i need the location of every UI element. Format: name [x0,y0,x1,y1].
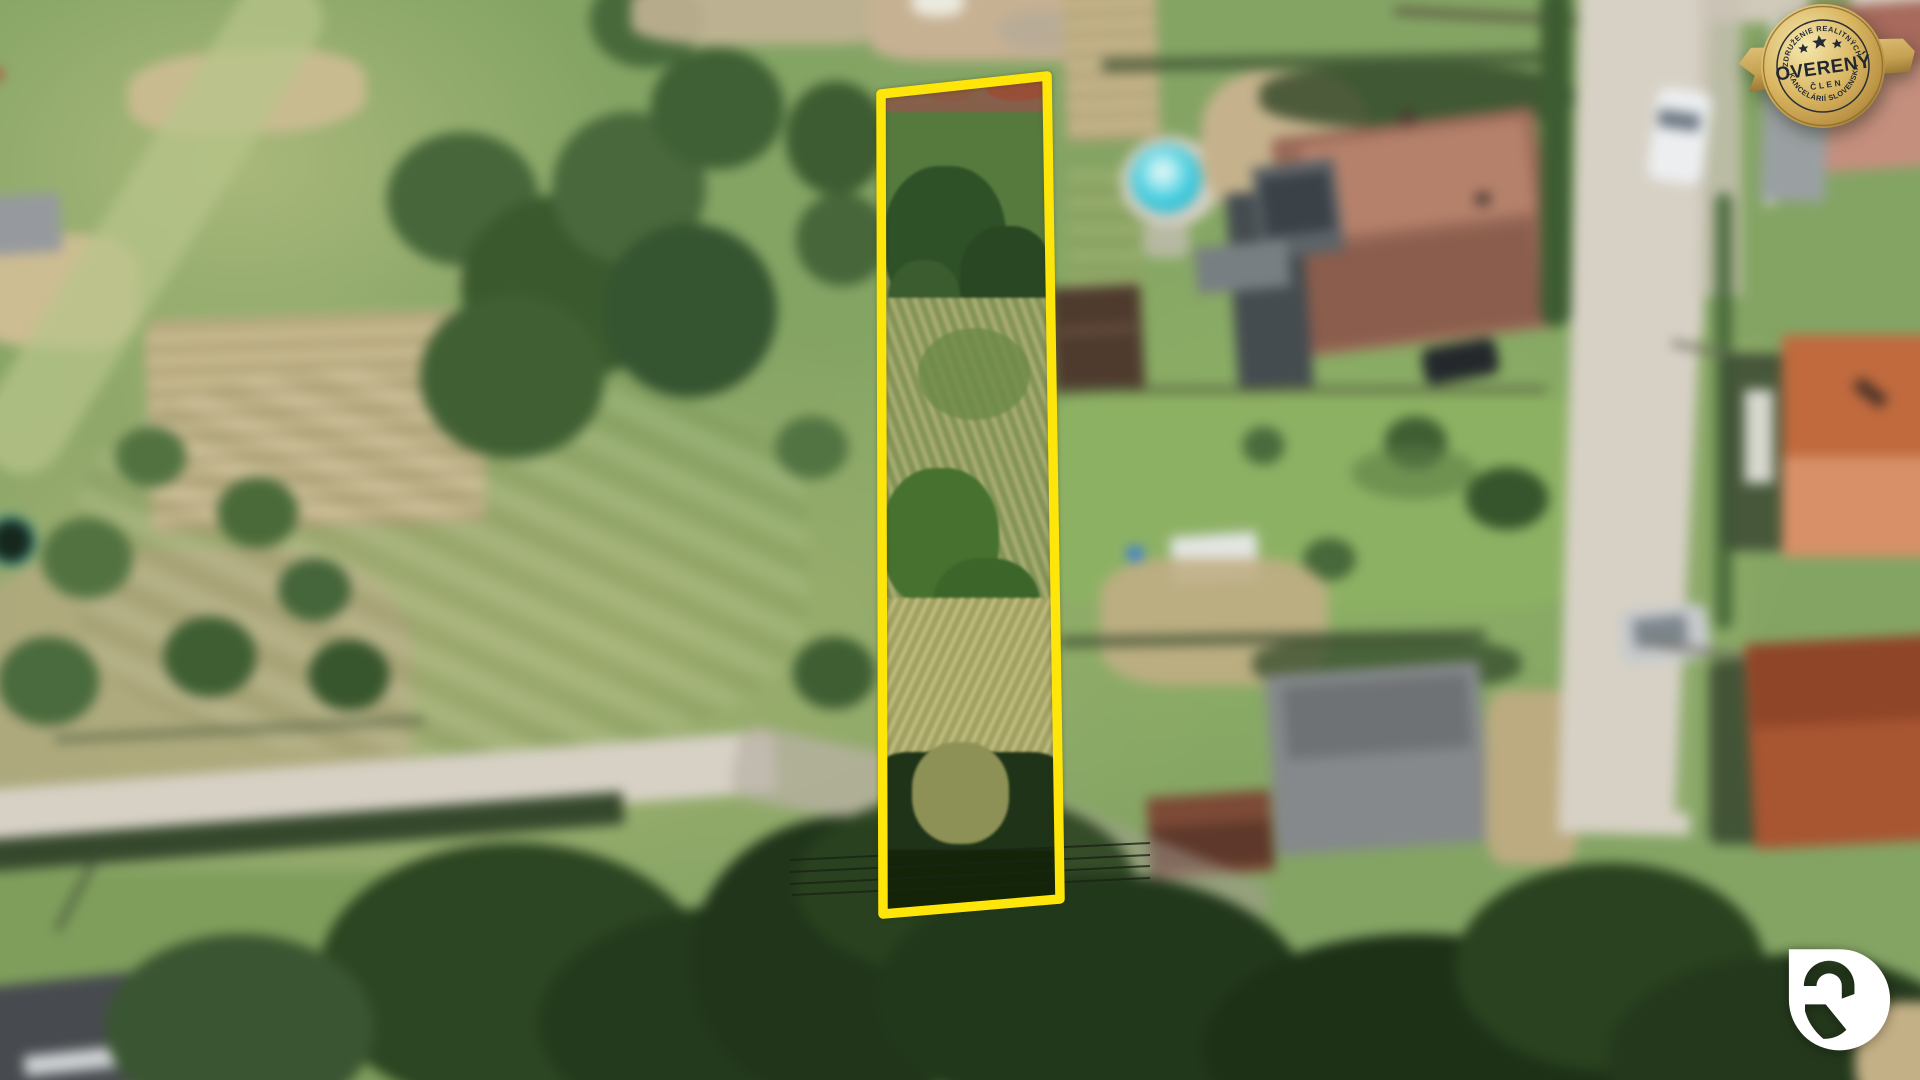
verified-member-badge: ZDRUŽENIE REALITNÝCH KANCELÁRIÍ SLOVENSK… [1730,0,1920,144]
plot-boundary-overlay [0,0,1920,1080]
power-lines [790,843,1150,895]
r-monogram-icon [1789,949,1890,1050]
plot-boundary-outline [881,76,1060,914]
aerial-photo: ZDRUŽENIE REALITNÝCH KANCELÁRIÍ SLOVENSK… [0,0,1920,1080]
agency-logo-r-monogram [1782,940,1897,1055]
